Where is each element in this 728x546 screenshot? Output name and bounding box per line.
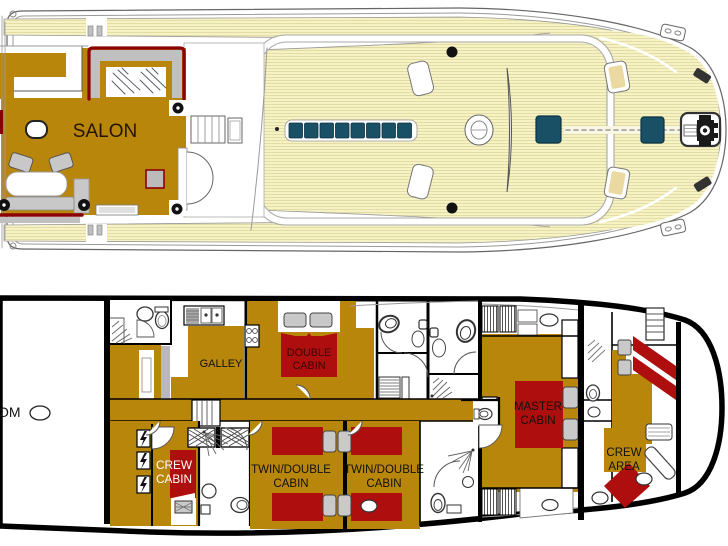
svg-text:TWIN/DOUBLE: TWIN/DOUBLE (344, 464, 424, 476)
svg-text:CABIN: CABIN (156, 472, 192, 486)
svg-text:CREW: CREW (156, 458, 193, 472)
svg-text:CABIN: CABIN (366, 478, 401, 490)
svg-text:CABIN: CABIN (293, 360, 326, 372)
svg-text:AREA: AREA (608, 461, 640, 473)
svg-text:GALLEY: GALLEY (200, 358, 243, 370)
svg-text:TWIN/DOUBLE: TWIN/DOUBLE (251, 464, 331, 476)
svg-text:SALON: SALON (73, 121, 137, 142)
svg-text:CREW: CREW (606, 447, 641, 459)
svg-text:MASTER: MASTER (514, 401, 562, 413)
svg-text:DOUBLE: DOUBLE (287, 347, 331, 359)
svg-text:OM: OM (0, 404, 21, 420)
svg-text:CABIN: CABIN (273, 478, 308, 490)
svg-text:CABIN: CABIN (520, 415, 555, 427)
